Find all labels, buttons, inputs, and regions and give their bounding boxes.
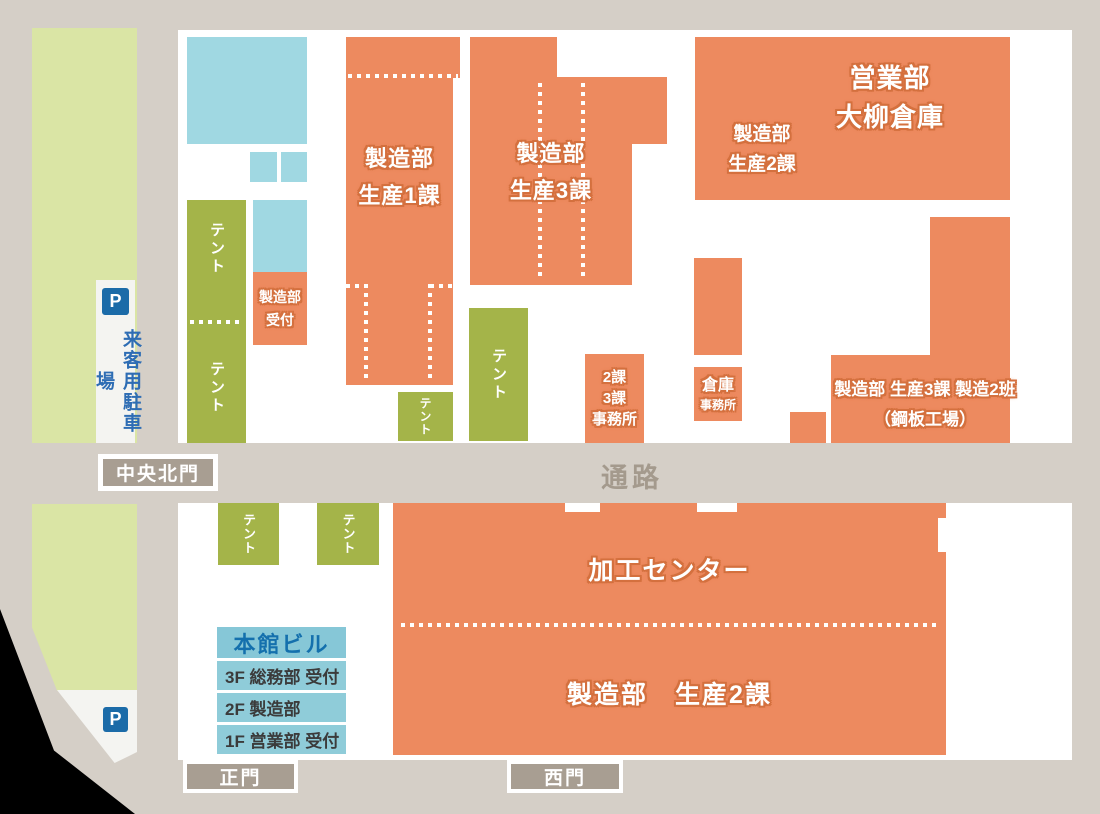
building-seisan1-annex [346, 37, 460, 78]
jimusho23-line1: 2課 [592, 367, 637, 388]
seisan2-upper-line2: 生産2課 [717, 150, 807, 180]
tent-label: テント [206, 222, 227, 276]
seisan1-dotted-h-right [430, 284, 453, 288]
kako-top-notch-1 [565, 503, 600, 512]
tent-label: テント [239, 513, 258, 555]
kako-divider-dotted [401, 623, 938, 627]
kako-center-label: 加工センター [393, 551, 946, 587]
kohan-line1: 製造部 生産3課 製造2班 [760, 375, 1090, 405]
parking-p-icon-south: P [103, 707, 128, 732]
soko-line2: 事務所 [700, 397, 736, 413]
blue-area-large [187, 37, 307, 144]
building-seisan3-annex [470, 37, 557, 77]
gate-central-north-label: 中央北門 [116, 459, 200, 486]
gate-west-label: 西門 [544, 763, 586, 790]
gate-central-north: 中央北門 [98, 454, 218, 491]
building-oyanagi: 営業部 大柳倉庫 製造部 生産2課 [695, 37, 1010, 200]
uketsuke-line1: 製造部 [259, 286, 301, 308]
building-seisan1: 製造部 生産1課 [346, 78, 453, 385]
tent-label: テント [206, 361, 227, 415]
building-soko-jimusho: 倉庫 事務所 [694, 367, 742, 421]
blue-area-small-1 [250, 152, 277, 182]
gate-west: 西門 [507, 760, 623, 793]
honkan-title: 本館ビル [217, 627, 346, 658]
visitor-parking-sign: P 来客用駐車場 [96, 280, 135, 443]
kako-right-notch [938, 518, 946, 552]
seisan1-line1: 製造部 [346, 140, 453, 177]
oyanagi-line1: 営業部 [790, 59, 990, 98]
building-jimusho23: 2課 3課 事務所 [585, 354, 644, 443]
building-kako-center: 加工センター 製造部 生産2課 [393, 503, 946, 755]
tent-south-1: テント [218, 503, 279, 565]
gate-main: 正門 [183, 760, 298, 793]
honkan-building: 本館ビル 3F 総務部 受付 2F 製造部 1F 営業部 受付 [217, 627, 346, 754]
tent-divider-dotted [190, 320, 243, 324]
gate-main-label: 正門 [219, 763, 261, 790]
honkan-floor-2f: 2F 製造部 [217, 693, 346, 722]
building-kohan-label: 製造部 生産3課 製造2班 （鋼板工場） [760, 375, 1090, 435]
oyanagi-line2: 大柳倉庫 [790, 98, 990, 137]
factory-site-map: P 来客用駐車場 P 通路 テント テント 製造部 受付 製造部 生産1課 [0, 0, 1100, 814]
tent-south-2: テント [317, 503, 379, 565]
parking-p-icon: P [102, 288, 129, 315]
building-soko-column [694, 258, 742, 355]
soko-line1: 倉庫 [700, 375, 736, 397]
seisan3-line1: 製造部 [470, 135, 632, 172]
building-seisan3-ext [632, 77, 667, 144]
visitor-parking-south [32, 504, 137, 691]
tent-label: テント [417, 397, 434, 436]
tent-label: テント [339, 513, 358, 555]
parking-south-wedge: P [57, 690, 137, 763]
tent-mid-column: テント [469, 308, 528, 441]
visitor-parking-label: 来客用駐車場 [105, 324, 144, 439]
honkan-floor-1f: 1F 営業部 受付 [217, 725, 346, 754]
building-seisan3: 製造部 生産3課 [470, 77, 632, 285]
jimusho23-line3: 事務所 [592, 409, 637, 430]
seisan1-dotted-v-left [364, 284, 368, 382]
road-label: 通路 [585, 456, 679, 495]
kako-top-notch-2 [697, 503, 737, 512]
seisan1-dotted-h-left [346, 284, 366, 288]
blue-area-mid [253, 200, 307, 272]
tent-north-column: テント テント [187, 200, 246, 443]
blue-area-small-2 [281, 152, 307, 182]
uketsuke-line2: 受付 [259, 309, 301, 331]
seisan2-lower-label: 製造部 生産2課 [393, 675, 946, 711]
kohan-line2: （鋼板工場） [760, 405, 1090, 435]
building-uketsuke: 製造部 受付 [253, 272, 307, 345]
jimusho23-line2: 3課 [592, 388, 637, 409]
seisan2-upper-line1: 製造部 [717, 120, 807, 150]
seisan3-line2: 生産3課 [470, 172, 632, 209]
honkan-floor-3f: 3F 総務部 受付 [217, 661, 346, 690]
tent-small-center: テント [398, 392, 453, 441]
seisan1-line2: 生産1課 [346, 177, 453, 214]
tent-label: テント [488, 348, 509, 402]
seisan1-dotted-v-right [428, 284, 432, 382]
